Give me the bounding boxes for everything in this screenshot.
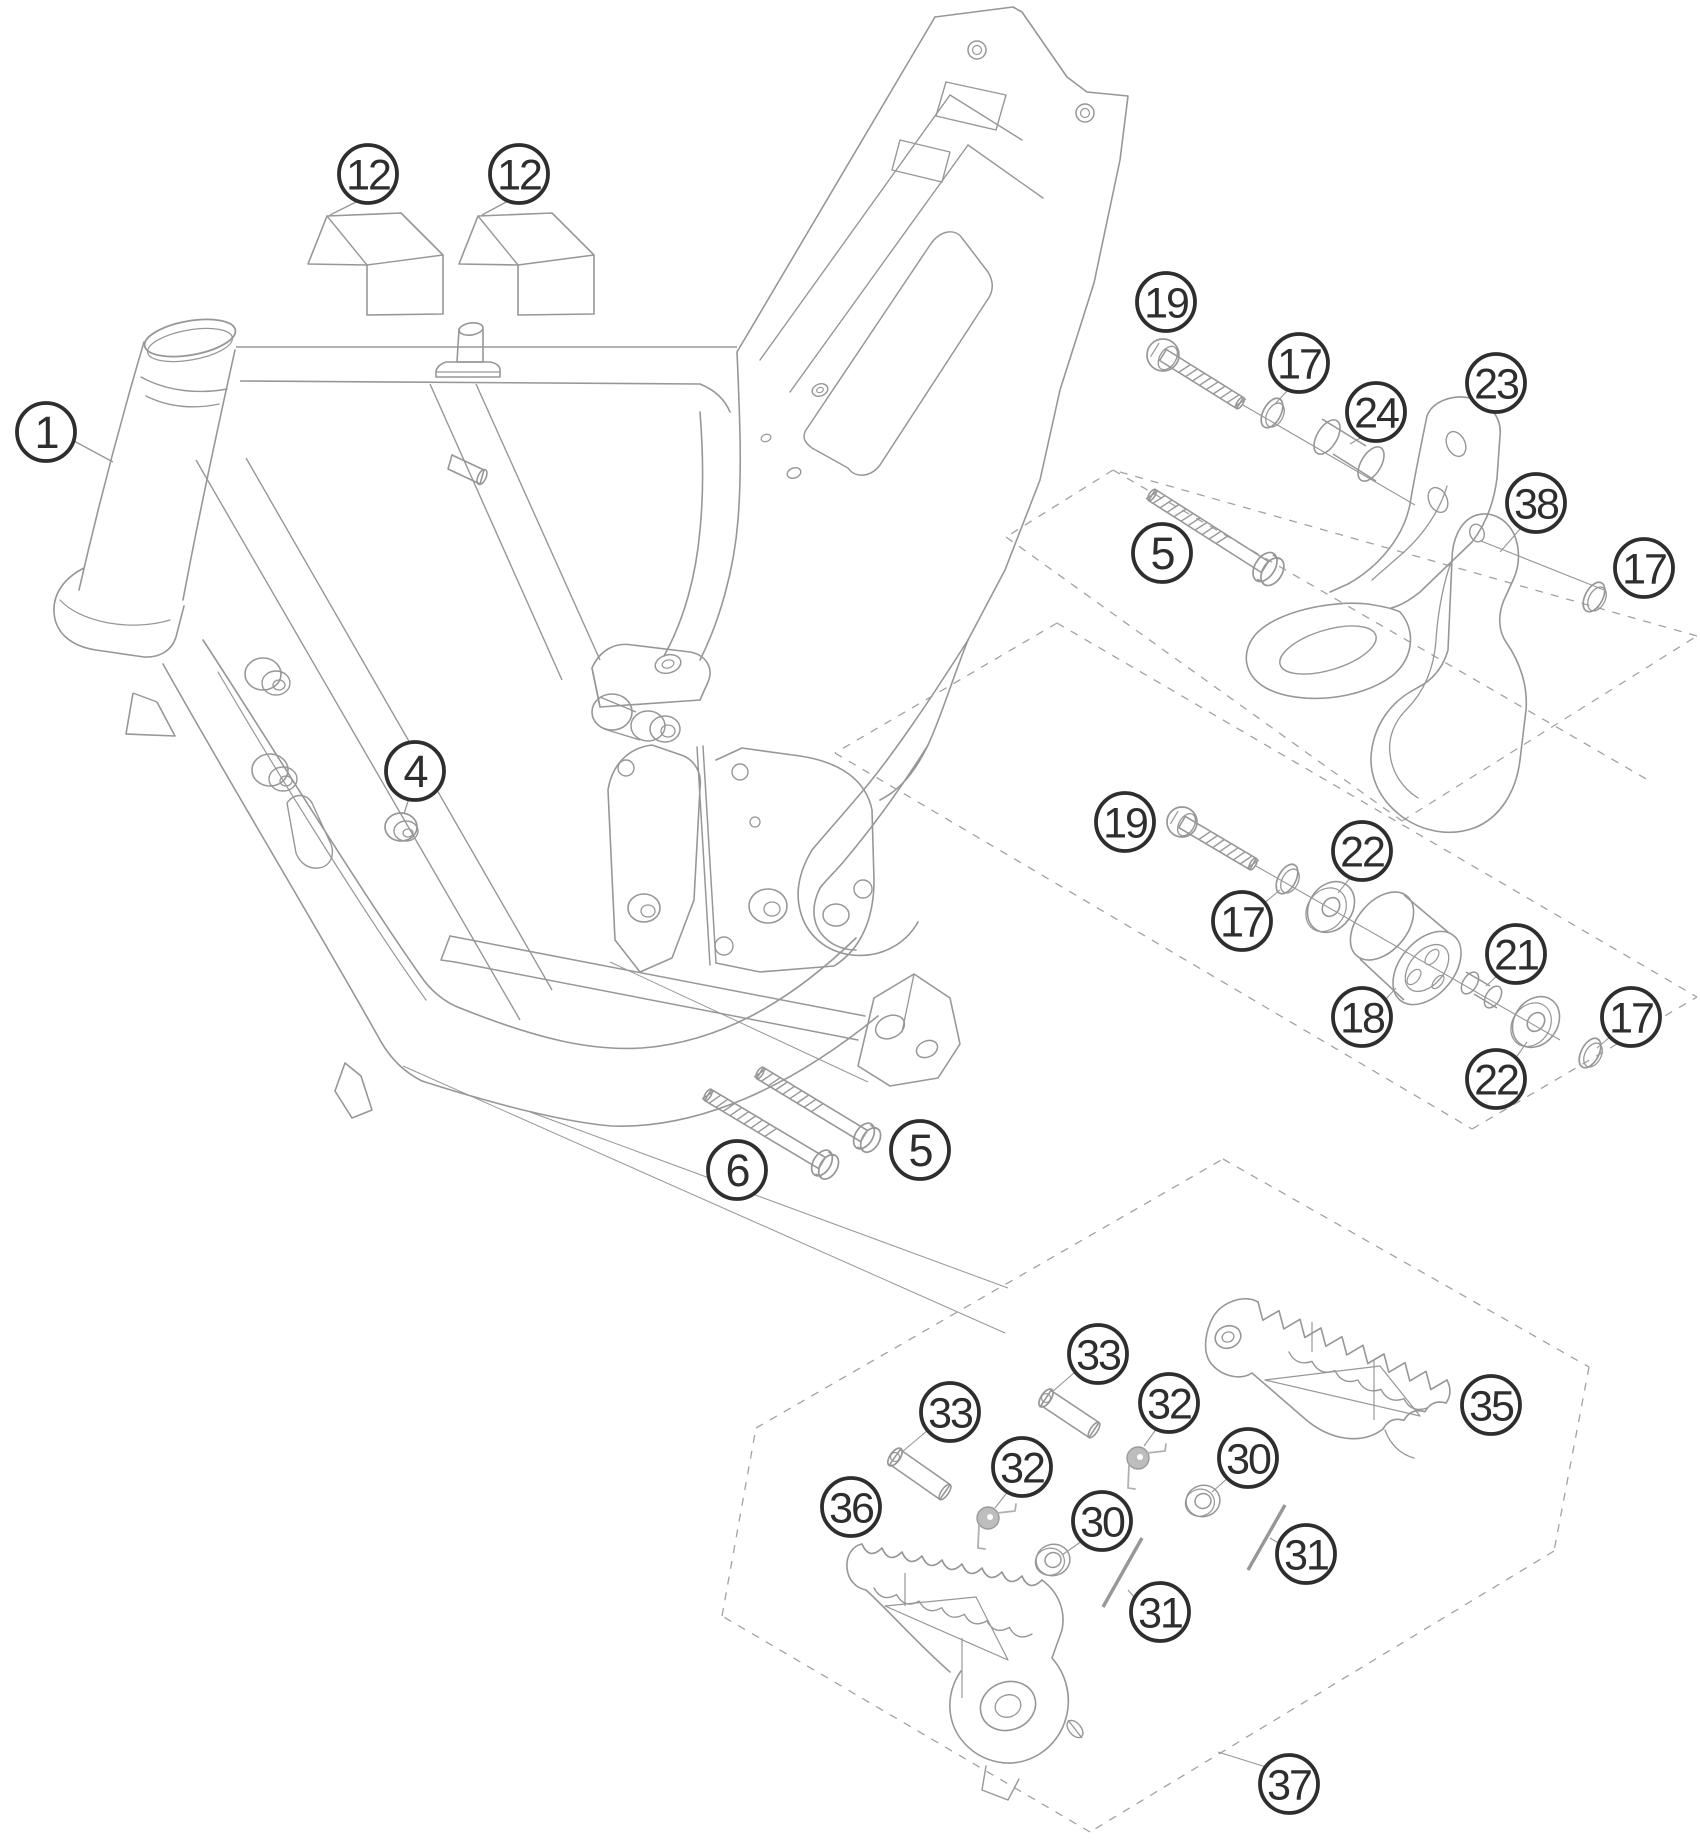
svg-text:23: 23 xyxy=(1474,360,1519,408)
svg-text:31: 31 xyxy=(1138,1589,1182,1637)
svg-text:5: 5 xyxy=(908,1125,932,1176)
svg-text:36: 36 xyxy=(829,1484,874,1532)
svg-text:6: 6 xyxy=(725,1145,749,1196)
svg-text:5: 5 xyxy=(1150,528,1174,579)
svg-text:17: 17 xyxy=(1220,898,1264,946)
svg-text:32: 32 xyxy=(1000,1444,1044,1492)
svg-text:31: 31 xyxy=(1284,1531,1328,1579)
svg-text:17: 17 xyxy=(1277,340,1321,388)
svg-text:32: 32 xyxy=(1147,1380,1191,1428)
svg-text:19: 19 xyxy=(1103,799,1147,847)
svg-text:30: 30 xyxy=(1080,1498,1125,1546)
svg-text:24: 24 xyxy=(1354,389,1399,437)
svg-text:1: 1 xyxy=(34,407,57,458)
svg-text:33: 33 xyxy=(928,1389,973,1437)
svg-text:17: 17 xyxy=(1609,994,1653,1042)
svg-text:30: 30 xyxy=(1226,1435,1271,1483)
svg-text:19: 19 xyxy=(1144,279,1188,327)
svg-text:12: 12 xyxy=(497,151,541,199)
svg-text:17: 17 xyxy=(1622,545,1666,593)
svg-text:12: 12 xyxy=(346,151,390,199)
svg-text:35: 35 xyxy=(1469,1382,1514,1430)
svg-text:4: 4 xyxy=(403,746,427,797)
svg-text:38: 38 xyxy=(1514,480,1559,528)
svg-text:33: 33 xyxy=(1076,1331,1121,1379)
svg-text:18: 18 xyxy=(1340,994,1385,1042)
svg-text:22: 22 xyxy=(1474,1056,1518,1104)
svg-text:21: 21 xyxy=(1494,931,1538,979)
svg-text:37: 37 xyxy=(1267,1761,1311,1809)
svg-text:22: 22 xyxy=(1340,828,1384,876)
